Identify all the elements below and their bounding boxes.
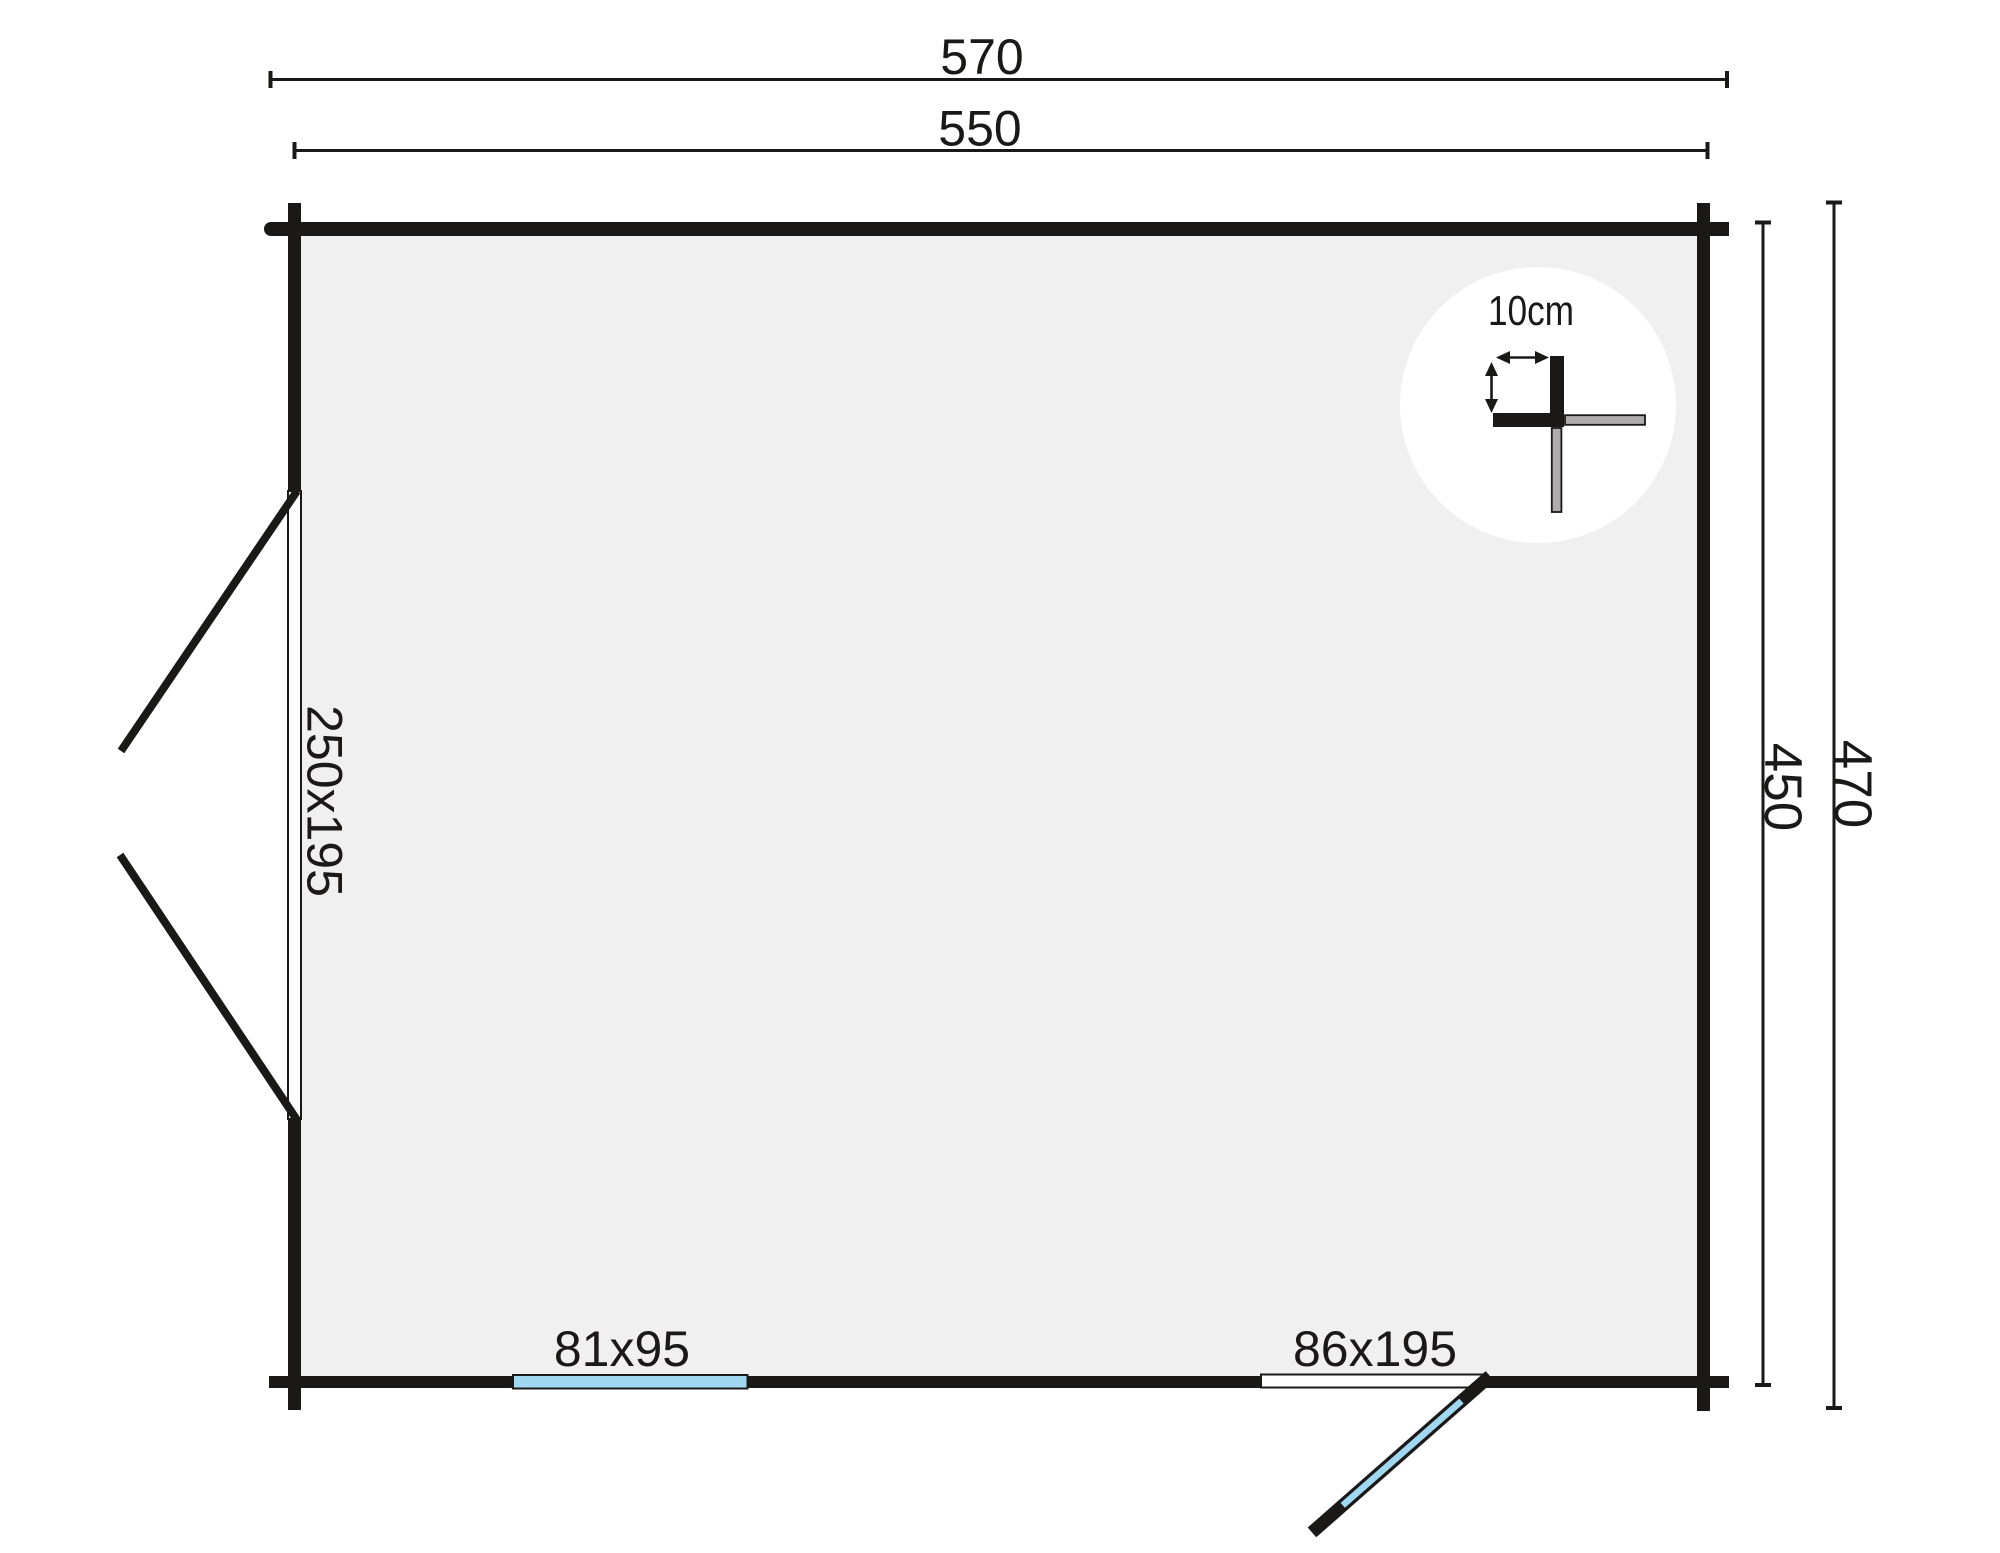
svg-text:250x195: 250x195: [297, 705, 353, 897]
svg-text:550: 550: [938, 101, 1021, 157]
svg-text:86x195: 86x195: [1293, 1321, 1457, 1377]
svg-text:470: 470: [1823, 740, 1882, 828]
svg-text:81x95: 81x95: [554, 1321, 690, 1377]
svg-text:450: 450: [1753, 743, 1812, 831]
svg-text:570: 570: [940, 29, 1023, 85]
